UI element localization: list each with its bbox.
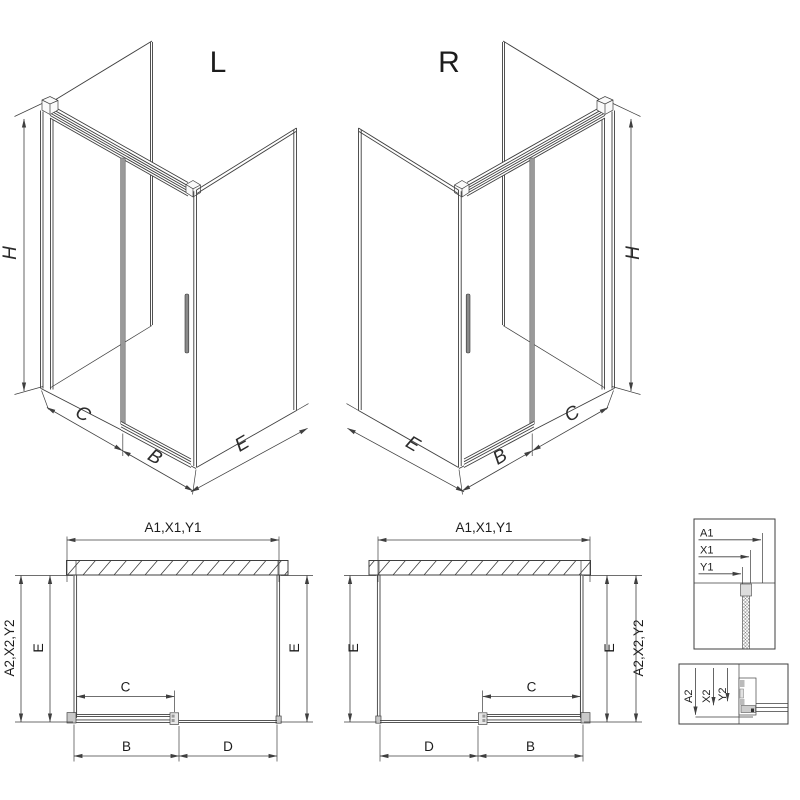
variant-label-left: L <box>210 46 227 79</box>
dim-label-e-left: E <box>232 432 254 457</box>
iso-left-geometry <box>15 41 309 495</box>
plan-right-b-label: B <box>526 739 535 754</box>
dim-label-height-right: H <box>623 246 644 260</box>
dim-label-b-left: B <box>144 445 166 470</box>
wall-hatch <box>67 561 289 576</box>
detail-x1-label: X1 <box>700 545 713 557</box>
plan-left-width-label: A1,X1,Y1 <box>144 520 201 535</box>
plan-right-c-label: C <box>527 680 537 695</box>
plan-right-e-left-label: E <box>345 643 361 652</box>
plan-left-depth-outer-label: A2,X2,Y2 <box>2 619 17 676</box>
plan-right-width-label: A1,X1,Y1 <box>455 520 512 535</box>
wall-profile-cap <box>741 584 752 596</box>
plan-right-d-label: D <box>424 739 434 754</box>
iso-view-right: R H C B E <box>347 41 645 495</box>
detail-y1-label: Y1 <box>700 562 713 574</box>
technical-drawing: L H C B E R H C B E A1,X1,Y1 A2,X2,Y2 E … <box>0 0 800 800</box>
detail-x2-label: X2 <box>701 690 713 703</box>
dim-label-height-left: H <box>0 246 21 260</box>
detail-y2-label: Y2 <box>717 688 729 701</box>
plan-right-e-right-label: E <box>601 643 617 652</box>
iso-right-geometry <box>347 41 641 495</box>
detail-a1-label: A1 <box>700 528 713 540</box>
plan-left-e-left-label: E <box>30 643 46 652</box>
plan-right-depth-outer-label: A2,X2,Y2 <box>631 619 646 676</box>
drawing-page: L H C B E R H C B E A1,X1,Y1 A2,X2,Y2 E … <box>0 0 800 800</box>
wall-hatch <box>369 561 591 576</box>
iso-view-left: L H C B E <box>0 41 309 495</box>
dim-label-e-right: E <box>402 432 424 457</box>
detail-view-width: A1 X1 Y1 <box>694 519 775 649</box>
plan-view-left: A1,X1,Y1 A2,X2,Y2 E E C B D <box>2 520 313 762</box>
plan-view-right: A1,X1,Y1 A2,X2,Y2 E E C B D <box>344 520 646 762</box>
detail-a2-label: A2 <box>683 690 695 703</box>
variant-label-right: R <box>438 46 460 79</box>
plan-left-d-label: D <box>223 739 233 754</box>
plan-left-c-label: C <box>121 680 131 695</box>
plan-left-b-label: B <box>122 739 131 754</box>
dim-label-b-right: B <box>490 445 512 470</box>
detail-view-depth: A2 X2 Y2 <box>679 664 788 724</box>
plan-left-e-right-label: E <box>286 643 302 652</box>
